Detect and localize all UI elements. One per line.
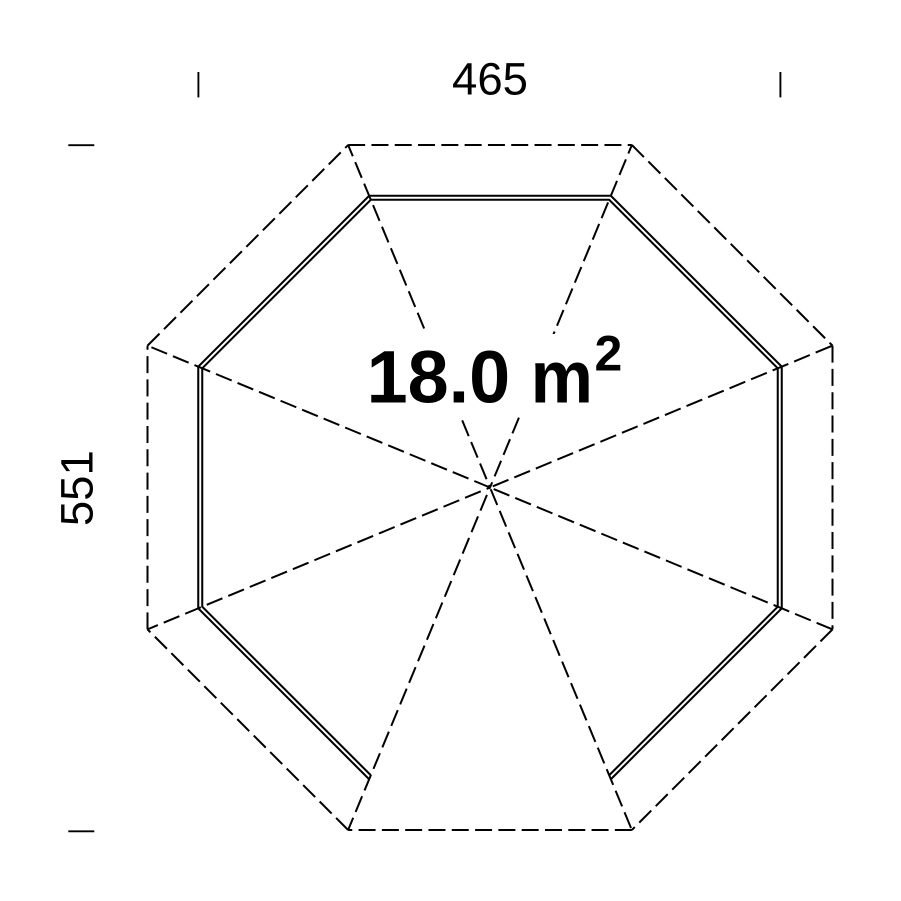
svg-text:2: 2 (595, 325, 623, 381)
svg-text:551: 551 (52, 450, 103, 526)
svg-text:465: 465 (452, 54, 528, 105)
svg-text:m: m (531, 337, 593, 419)
svg-text:18.0: 18.0 (367, 335, 511, 418)
